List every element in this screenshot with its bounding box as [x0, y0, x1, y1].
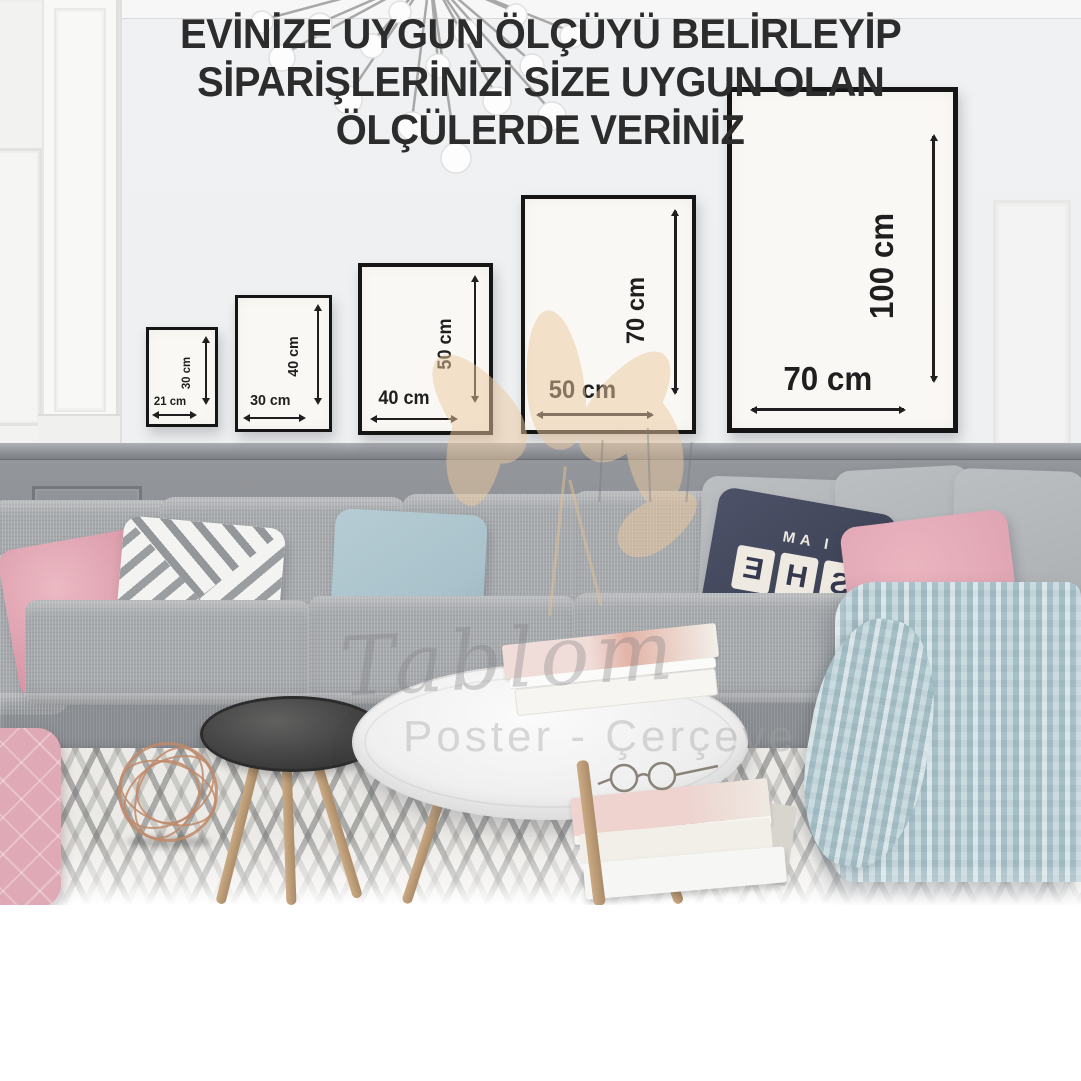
width-label: 70 cm: [783, 360, 872, 398]
width-arrow: [752, 408, 905, 411]
sphere-ring: [136, 760, 200, 824]
frame-70x100: 70 cm 100 cm: [727, 87, 958, 433]
width-arrow: [154, 414, 195, 416]
wall-left: [0, 0, 122, 452]
width-label: 30 cm: [250, 392, 290, 409]
decor-wire-sphere: [118, 742, 218, 842]
letter-tile: E: [731, 544, 776, 594]
pillow-text-top: I AM: [777, 527, 830, 553]
width-arrow: [245, 417, 303, 419]
width-label: 40 cm: [379, 388, 430, 410]
height-label: 70 cm: [622, 277, 651, 344]
frame-40x50: 40 cm 50 cm: [358, 263, 493, 435]
wall-panel-right: [993, 200, 1071, 448]
watermark-subline: Poster - Çerçeve: [240, 712, 960, 762]
height-arrow: [674, 211, 677, 394]
caption-line-3: ÖLÇÜLERDE VERİNİZ: [336, 106, 745, 154]
width-label: 50 cm: [548, 376, 615, 405]
watermark-script: Tablom: [338, 603, 682, 716]
product-image: 21 cm 30 cm 30 cm 40 cm 40 cm 50 cm 50 c…: [0, 0, 1081, 1081]
width-arrow: [538, 413, 652, 416]
eyeglasses: [596, 758, 736, 798]
height-label: 40 cm: [285, 336, 302, 376]
pilaster-panel: [54, 8, 106, 412]
height-arrow: [317, 306, 319, 403]
height-arrow: [205, 338, 207, 404]
caption-line-2: SİPARİŞLERİNİZİ SİZE UYGUN OLAN: [197, 58, 884, 106]
height-label: 100 cm: [863, 212, 901, 318]
wall-panel-left: [0, 148, 42, 426]
caption-line-1: EVİNİZE UYGUN ÖLÇÜYÜ BELİRLEYİP: [180, 10, 901, 58]
height-label: 30 cm: [179, 357, 193, 389]
height-arrow: [932, 136, 935, 381]
frame-30x40: 30 cm 40 cm: [235, 295, 332, 432]
height-arrow: [474, 277, 476, 402]
frame-50x70: 50 cm 70 cm: [521, 195, 696, 434]
width-label: 21 cm: [154, 394, 186, 408]
chair-rail: [0, 443, 1081, 460]
frame-21x30: 21 cm 30 cm: [146, 327, 218, 427]
pink-pouf: [0, 728, 61, 905]
height-label: 50 cm: [435, 318, 457, 369]
sofa-seat-cushion: [25, 600, 310, 705]
pilaster: [42, 0, 118, 450]
width-arrow: [372, 418, 456, 420]
